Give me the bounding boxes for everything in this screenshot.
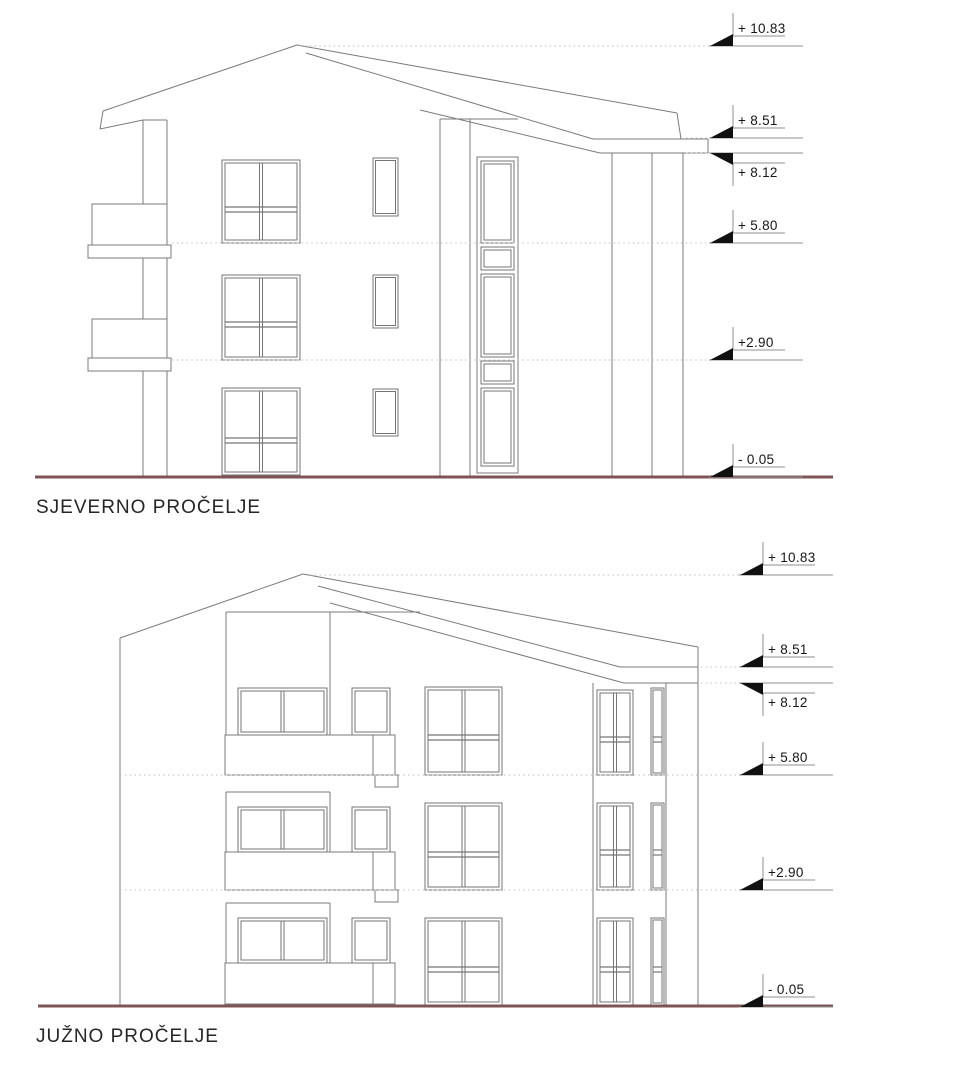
balcony-parapet — [373, 963, 395, 1004]
window-frame-outer — [597, 918, 633, 1005]
stair-window — [481, 161, 514, 243]
window-frame-outer — [373, 275, 398, 328]
window — [425, 687, 502, 775]
facade-line — [420, 110, 600, 153]
window — [238, 688, 327, 735]
balcony-parapet — [373, 735, 395, 775]
window — [222, 275, 300, 360]
balcony-parapet — [375, 890, 398, 902]
window-frame-outer — [481, 274, 514, 357]
window-frame-outer — [373, 389, 398, 436]
stair-panel — [481, 361, 514, 384]
level-value: + 8.12 — [738, 165, 778, 180]
level-value: - 0.05 — [768, 982, 804, 997]
window-frame-outer — [373, 158, 398, 216]
level-value: + 8.51 — [768, 642, 808, 657]
architectural-elevations: + 10.83+ 8.51+ 8.12+ 5.80+2.90- 0.05 SJE… — [0, 0, 964, 1080]
window — [238, 807, 327, 852]
balcony-parapet — [225, 735, 373, 775]
facade-line — [120, 574, 303, 638]
level-value: +2.90 — [768, 865, 804, 880]
level-value: + 8.12 — [768, 695, 808, 710]
level-triangle-icon — [740, 655, 763, 667]
window-frame-outer — [352, 688, 390, 735]
facade-line — [677, 113, 681, 139]
level-triangle-icon — [710, 126, 733, 138]
level-triangle-icon — [740, 995, 763, 1007]
level-marker: + 10.83 — [300, 13, 803, 46]
window-frame-outer — [238, 688, 327, 735]
balcony-parapet — [88, 358, 171, 371]
facade-line — [100, 120, 143, 129]
window — [651, 803, 664, 890]
level-marker: + 8.12 — [701, 683, 833, 716]
stair-window — [481, 388, 514, 466]
level-marker: + 8.51 — [701, 634, 833, 667]
window — [238, 918, 327, 963]
level-value: + 10.83 — [768, 550, 816, 565]
stair-window — [481, 274, 514, 357]
level-triangle-icon — [710, 153, 733, 165]
drawing-sheet: + 10.83+ 8.51+ 8.12+ 5.80+2.90- 0.05 SJE… — [0, 0, 964, 1080]
facade-line — [303, 574, 698, 647]
window-frame-outer — [222, 388, 300, 475]
window-frame-outer — [597, 690, 633, 775]
balcony-parapet — [225, 852, 373, 890]
level-triangle-icon — [710, 34, 733, 46]
south-facade-title: JUŽNO PROČELJE — [36, 1025, 219, 1047]
level-marker: + 10.83 — [310, 542, 833, 575]
level-triangle-icon — [710, 465, 733, 477]
window — [222, 160, 300, 243]
level-marker: - 0.05 — [739, 974, 833, 1007]
level-value: + 5.80 — [768, 750, 808, 765]
level-value: + 5.80 — [738, 218, 778, 233]
window-frame-outer — [222, 275, 300, 360]
window — [352, 807, 390, 852]
level-value: + 8.51 — [738, 113, 778, 128]
north-facade-title: SJEVERNO PROČELJE — [36, 496, 261, 518]
level-marker: + 8.12 — [686, 153, 803, 186]
level-triangle-icon — [740, 763, 763, 775]
facade-line — [330, 603, 624, 683]
window-frame-outer — [425, 687, 502, 775]
window-frame-outer — [597, 803, 633, 890]
facade-line — [318, 586, 620, 667]
facade-line — [297, 45, 677, 113]
level-value: - 0.05 — [738, 452, 774, 467]
south-facade-drawing — [38, 574, 833, 1006]
balcony-parapet — [88, 245, 171, 258]
window-frame-outer — [352, 918, 390, 963]
window — [425, 803, 502, 890]
level-value: + 10.83 — [738, 21, 786, 36]
window — [651, 918, 664, 1005]
window-frame-outer — [425, 918, 502, 1005]
window — [651, 688, 664, 775]
facade-line — [306, 53, 593, 139]
balcony-parapet — [373, 852, 395, 890]
facade-line — [100, 111, 103, 129]
window — [373, 158, 398, 216]
north-facade-drawing — [35, 45, 833, 477]
level-triangle-icon — [740, 563, 763, 575]
window — [597, 803, 633, 890]
window-frame-outer — [481, 161, 514, 243]
window-frame-outer — [238, 918, 327, 963]
level-triangle-icon — [740, 878, 763, 890]
balcony-parapet — [375, 775, 398, 787]
window-frame-outer — [352, 807, 390, 852]
balcony-parapet — [92, 319, 167, 358]
window — [222, 388, 300, 475]
stair-panel — [481, 247, 514, 270]
window-frame-outer — [222, 160, 300, 243]
facade-line — [103, 45, 297, 111]
window — [352, 688, 390, 735]
window-frame-outer — [425, 803, 502, 890]
balcony-parapet — [92, 204, 167, 245]
window — [425, 918, 502, 1005]
level-triangle-icon — [710, 231, 733, 243]
level-marker: - 0.05 — [709, 444, 803, 477]
balcony-parapet — [225, 963, 373, 1004]
level-value: +2.90 — [738, 335, 774, 350]
level-triangle-icon — [710, 348, 733, 360]
window — [597, 690, 633, 775]
window — [352, 918, 390, 963]
window-frame-outer — [238, 807, 327, 852]
window — [597, 918, 633, 1005]
window — [373, 389, 398, 436]
level-marker: + 8.51 — [686, 105, 803, 138]
level-triangle-icon — [740, 683, 763, 695]
window — [373, 275, 398, 328]
window-frame-outer — [481, 388, 514, 466]
